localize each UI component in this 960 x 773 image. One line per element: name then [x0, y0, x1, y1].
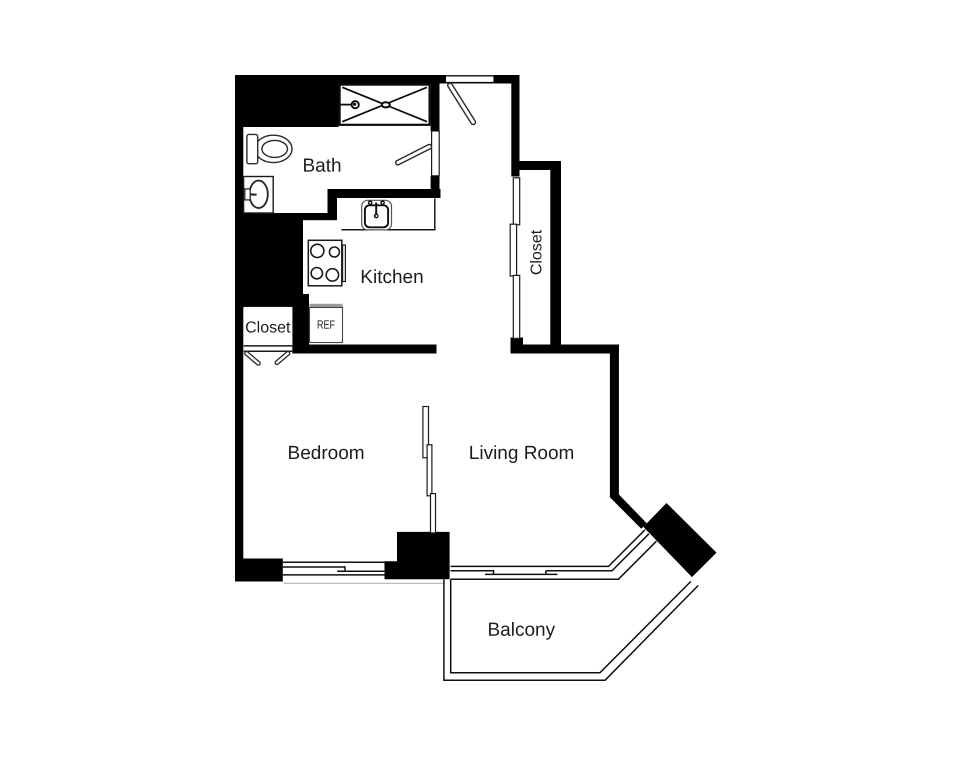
svg-text:REF: REF: [317, 318, 335, 332]
svg-text:Balcony: Balcony: [487, 620, 555, 641]
svg-text:Bath: Bath: [302, 156, 341, 177]
svg-text:Kitchen: Kitchen: [360, 267, 423, 288]
svg-text:Living Room: Living Room: [469, 443, 575, 464]
svg-text:Bedroom: Bedroom: [288, 443, 365, 464]
svg-text:Closet: Closet: [528, 229, 545, 275]
svg-text:Closet: Closet: [245, 319, 291, 336]
